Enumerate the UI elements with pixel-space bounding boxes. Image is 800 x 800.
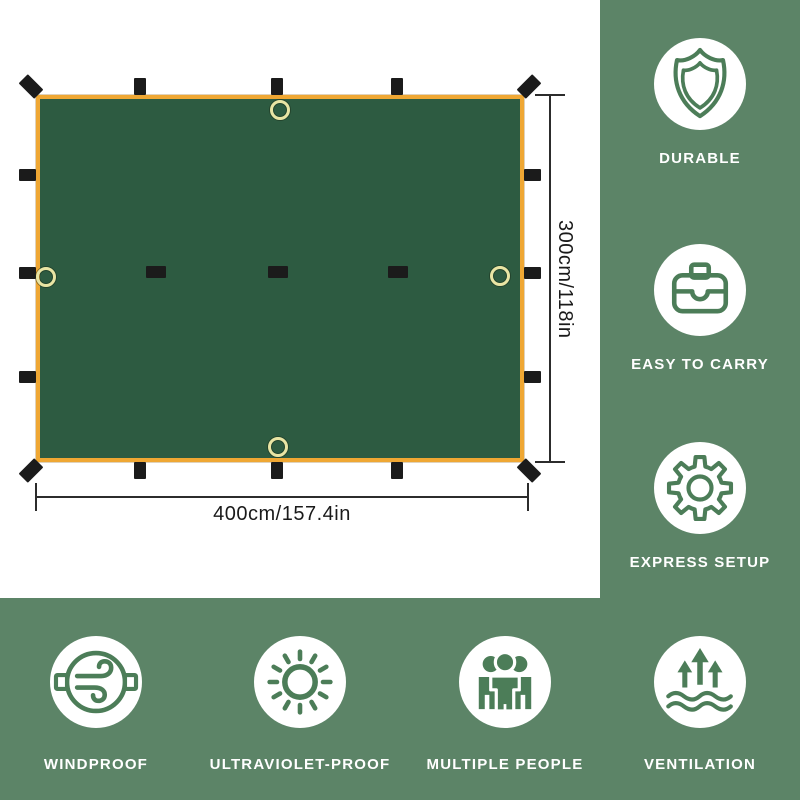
webbing-tab [134, 78, 146, 95]
feature-label: DURABLE [659, 150, 741, 167]
webbing-tab [271, 78, 283, 95]
feature-circle [654, 38, 746, 130]
feature-windproof: WINDPROOF [0, 636, 196, 773]
feature-label: EASY TO CARRY [631, 356, 769, 373]
surface-tab [146, 266, 166, 278]
feature-circle [654, 442, 746, 534]
feature-circle [654, 636, 746, 728]
webbing-tab [391, 78, 403, 95]
feature-ultraviolet-proof: ULTRAVIOLET-PROOF [200, 636, 400, 773]
tarp-illustration [36, 95, 524, 462]
shield-icon [654, 38, 746, 130]
feature-ventilation: VENTILATION [600, 636, 800, 773]
ventilation-icon [654, 636, 746, 728]
wind-icon [50, 636, 142, 728]
webbing-tab [524, 267, 541, 279]
webbing-tab [19, 169, 36, 181]
feature-label: MULTIPLE PEOPLE [427, 756, 584, 773]
product-infographic: 300cm/118in 400cm/157.4in DURABLE EASY T… [0, 0, 800, 800]
surface-tab [268, 266, 288, 278]
corner-tab [19, 458, 44, 483]
feature-express-setup: EXPRESS SETUP [600, 442, 800, 571]
feature-circle [254, 636, 346, 728]
people-icon [459, 636, 551, 728]
feature-multiple-people: MULTIPLE PEOPLE [405, 636, 605, 773]
feature-easy-to-carry: EASY TO CARRY [600, 244, 800, 373]
grommet [490, 266, 510, 286]
feature-circle [459, 636, 551, 728]
surface-tab [388, 266, 408, 278]
feature-label: EXPRESS SETUP [630, 554, 771, 571]
feature-label: ULTRAVIOLET-PROOF [210, 756, 391, 773]
webbing-tab [391, 462, 403, 479]
gear-icon [654, 442, 746, 534]
webbing-tab [524, 371, 541, 383]
grommet [36, 267, 56, 287]
webbing-tab [271, 462, 283, 479]
webbing-tab [524, 169, 541, 181]
grommet [270, 100, 290, 120]
corner-tab [19, 74, 44, 99]
sun-icon [254, 636, 346, 728]
webbing-tab [19, 371, 36, 383]
feature-durable: DURABLE [600, 38, 800, 167]
webbing-tab [134, 462, 146, 479]
webbing-tab [19, 267, 36, 279]
height-dimension-line [549, 95, 551, 463]
grommet [268, 437, 288, 457]
height-dimension-label: 300cm/118in [553, 95, 576, 463]
feature-label: VENTILATION [644, 756, 756, 773]
briefcase-icon [654, 244, 746, 336]
feature-circle [50, 636, 142, 728]
feature-label: WINDPROOF [44, 756, 148, 773]
width-dimension-line [36, 496, 528, 498]
feature-circle [654, 244, 746, 336]
width-dimension-label: 400cm/157.4in [36, 503, 528, 526]
